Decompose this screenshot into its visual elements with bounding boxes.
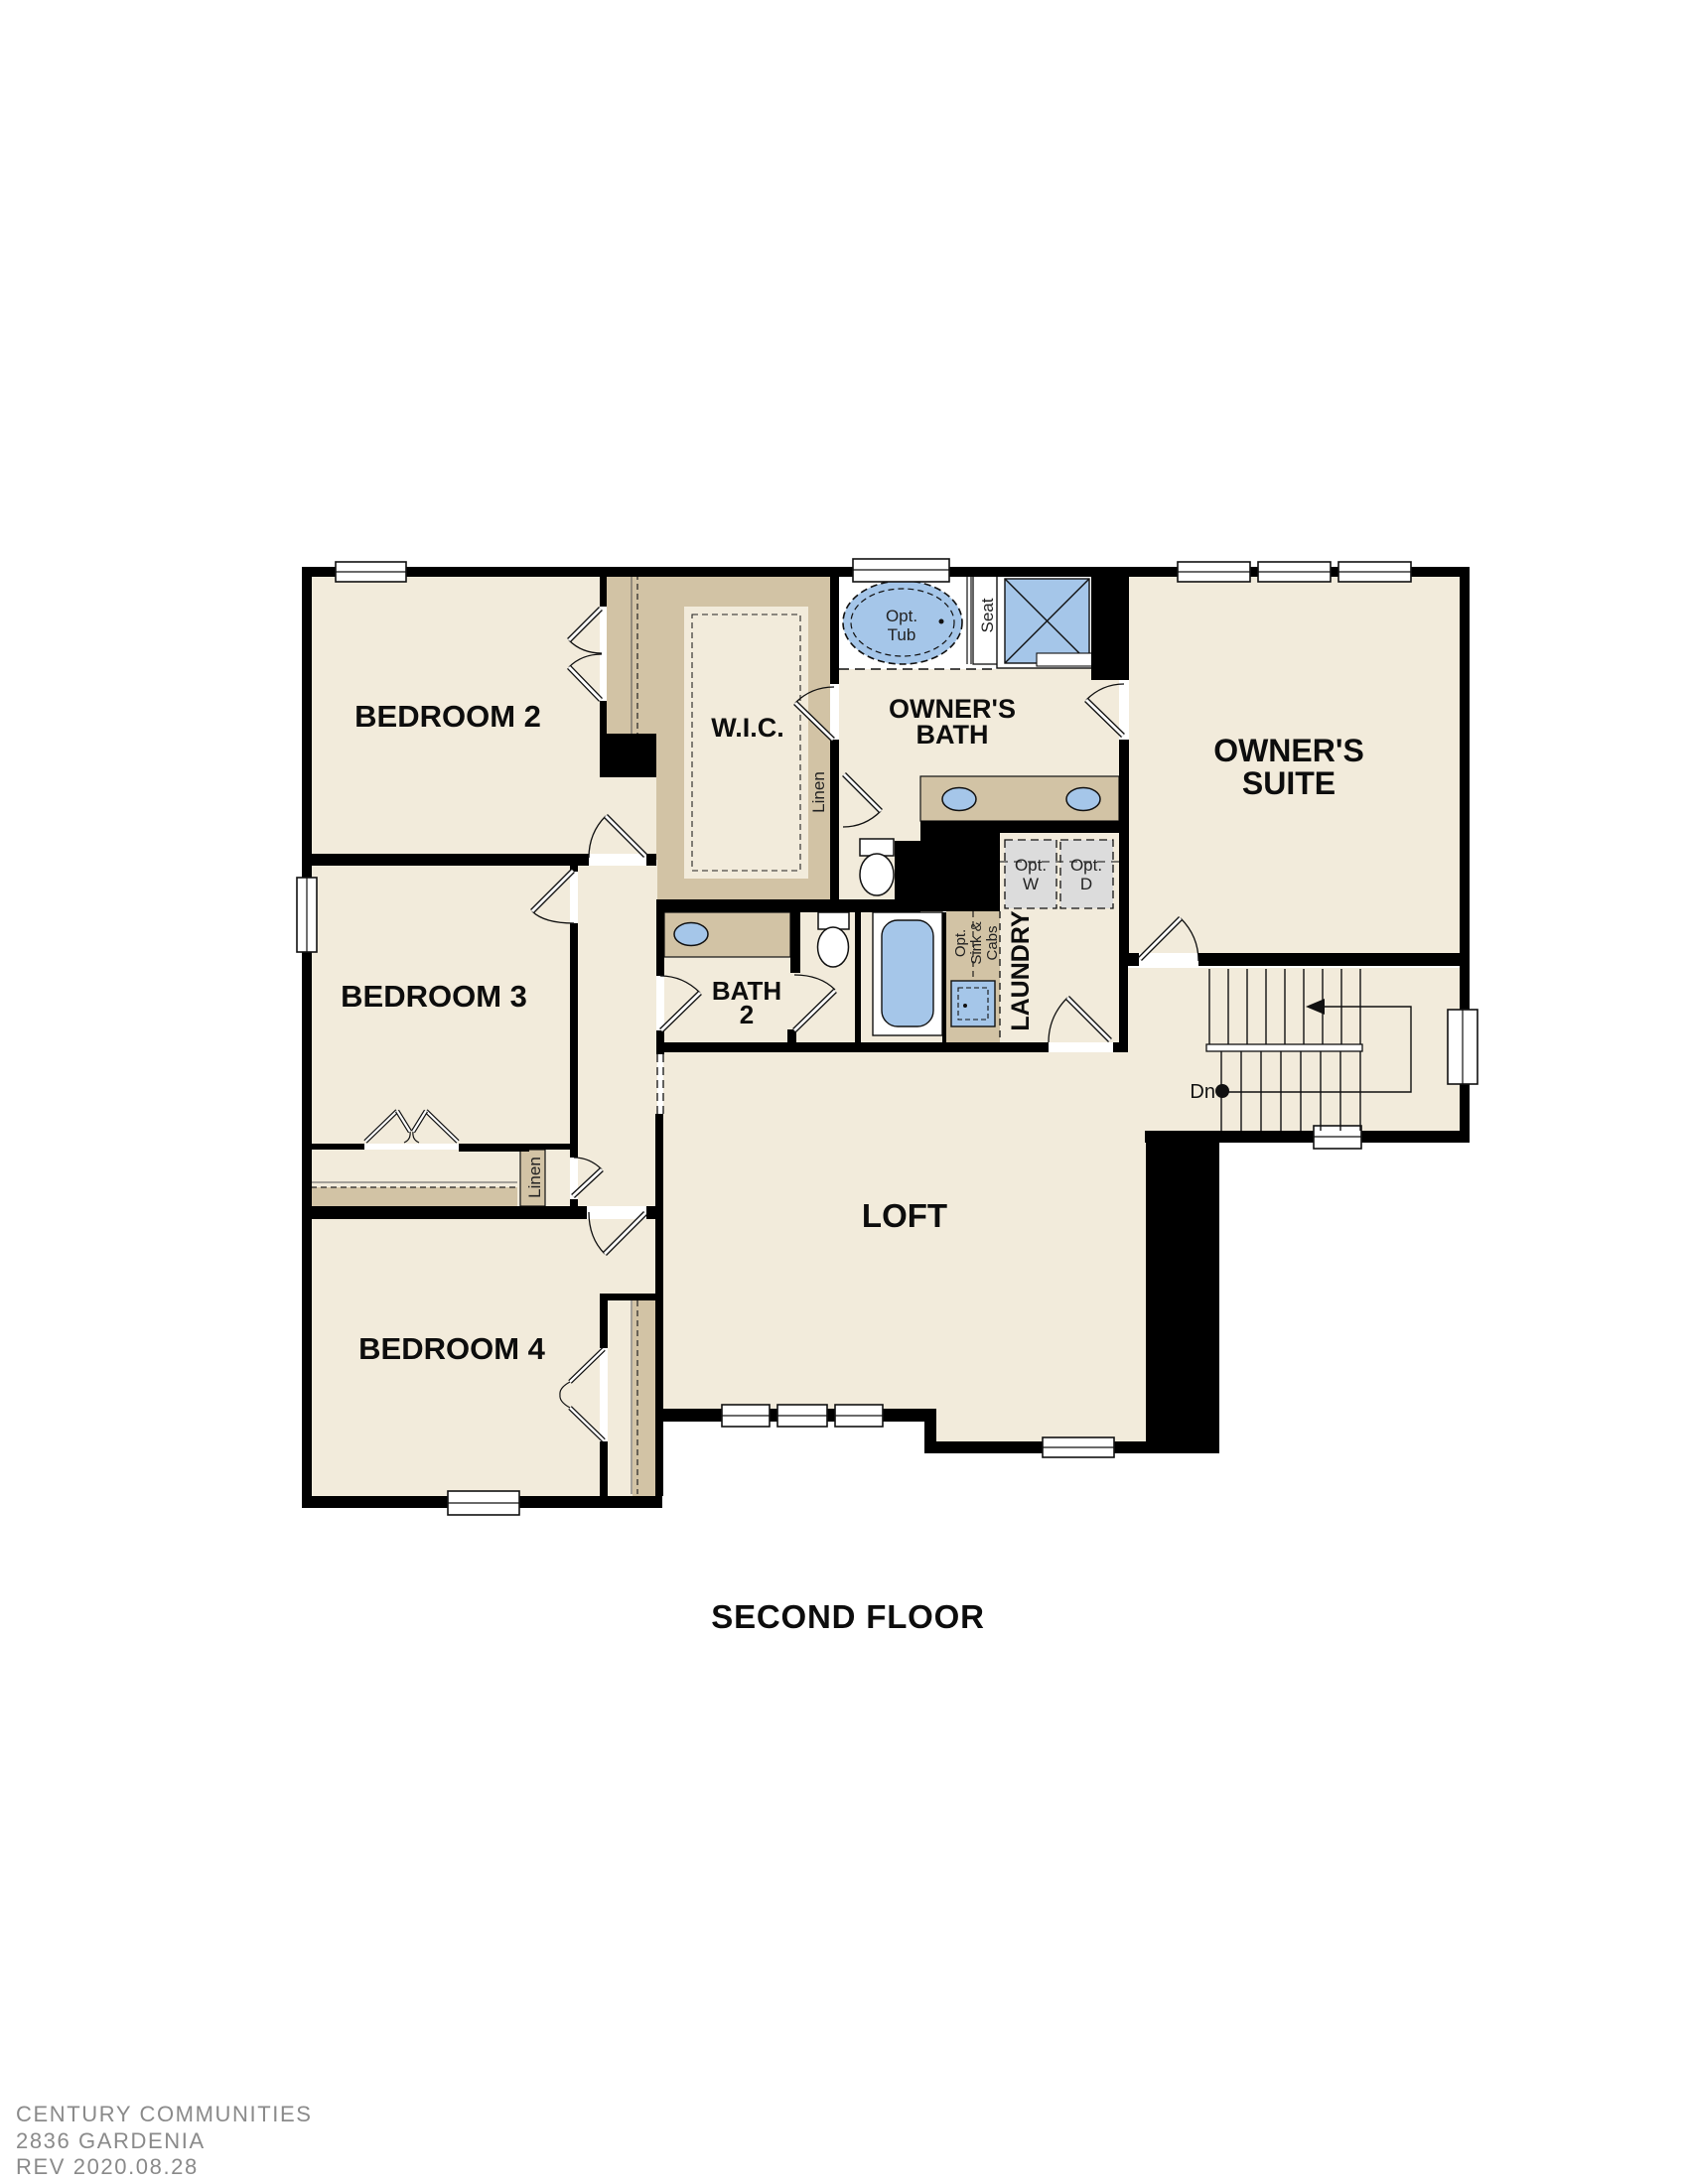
- svg-text:LOFT: LOFT: [862, 1197, 947, 1234]
- svg-text:Cabs: Cabs: [984, 925, 1001, 960]
- svg-text:W.I.C.: W.I.C.: [711, 713, 784, 743]
- svg-text:W: W: [1023, 875, 1039, 893]
- svg-text:BEDROOM 4: BEDROOM 4: [358, 1331, 546, 1366]
- svg-text:LAUNDRY: LAUNDRY: [1007, 910, 1035, 1031]
- svg-text:Opt.: Opt.: [1070, 856, 1102, 875]
- svg-text:Seat: Seat: [978, 598, 997, 632]
- svg-text:D: D: [1080, 875, 1092, 893]
- svg-text:Dn: Dn: [1190, 1081, 1215, 1103]
- svg-text:Sink &: Sink &: [968, 921, 985, 964]
- svg-text:BEDROOM 3: BEDROOM 3: [341, 979, 527, 1014]
- svg-text:Tub: Tub: [888, 625, 916, 644]
- svg-text:REV 2020.08.28: REV 2020.08.28: [16, 2154, 199, 2179]
- svg-text:OWNER'S: OWNER'S: [1213, 733, 1364, 768]
- svg-text:Opt.: Opt.: [952, 929, 969, 957]
- svg-text:2: 2: [740, 1000, 754, 1029]
- svg-text:BATH: BATH: [916, 720, 989, 750]
- svg-text:SUITE: SUITE: [1242, 765, 1336, 801]
- svg-text:2836 GARDENIA: 2836 GARDENIA: [16, 2128, 206, 2153]
- svg-text:BEDROOM 2: BEDROOM 2: [354, 699, 541, 734]
- svg-text:Opt.: Opt.: [1015, 856, 1047, 875]
- svg-text:Opt.: Opt.: [886, 607, 917, 625]
- svg-text:SECOND FLOOR: SECOND FLOOR: [711, 1598, 984, 1635]
- svg-text:Linen: Linen: [525, 1157, 544, 1198]
- svg-text:Linen: Linen: [809, 771, 828, 813]
- svg-text:CENTURY COMMUNITIES: CENTURY COMMUNITIES: [16, 2102, 313, 2126]
